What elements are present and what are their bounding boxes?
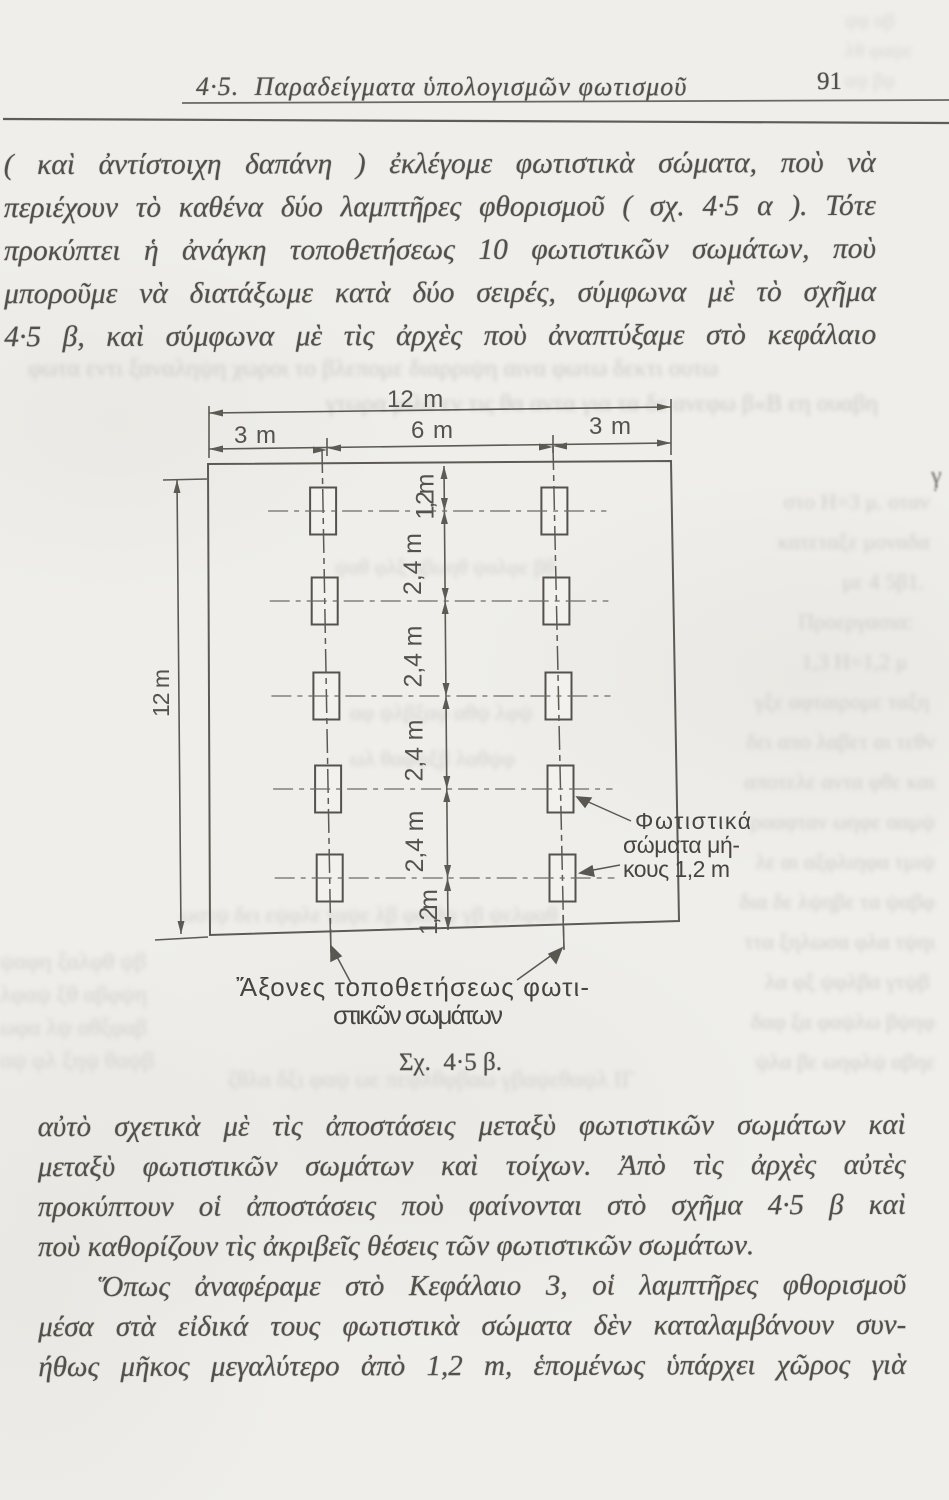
svg-text:σώματα μή-: σώματα μή-: [623, 832, 740, 858]
svg-text:2,4 m: 2,4 m: [399, 533, 427, 595]
svg-text:στικῶν σωμάτων: στικῶν σωμάτων: [333, 1000, 503, 1030]
svg-text:1,2m: 1,2m: [411, 474, 439, 520]
svg-text:2,4 m: 2,4 m: [400, 626, 428, 688]
svg-text:2,4 m: 2,4 m: [401, 720, 429, 782]
svg-text:Ἄξονες τοποθετήσεως φωτι-: Ἄξονες τοποθετήσεως φωτι-: [236, 972, 589, 1002]
svg-text:12 m: 12 m: [148, 669, 174, 717]
svg-text:1,2m: 1,2m: [415, 889, 443, 935]
svg-text:6 m: 6 m: [411, 417, 453, 444]
svg-text:2,4 m: 2,4 m: [401, 811, 429, 873]
svg-text:κους 1,2 m: κους 1,2 m: [623, 856, 730, 882]
svg-text:3 m: 3 m: [234, 422, 276, 449]
svg-text:3 m: 3 m: [589, 413, 631, 440]
svg-text:Φωτιστικά: Φωτιστικά: [635, 808, 751, 834]
svg-text:12 m: 12 m: [387, 386, 443, 413]
